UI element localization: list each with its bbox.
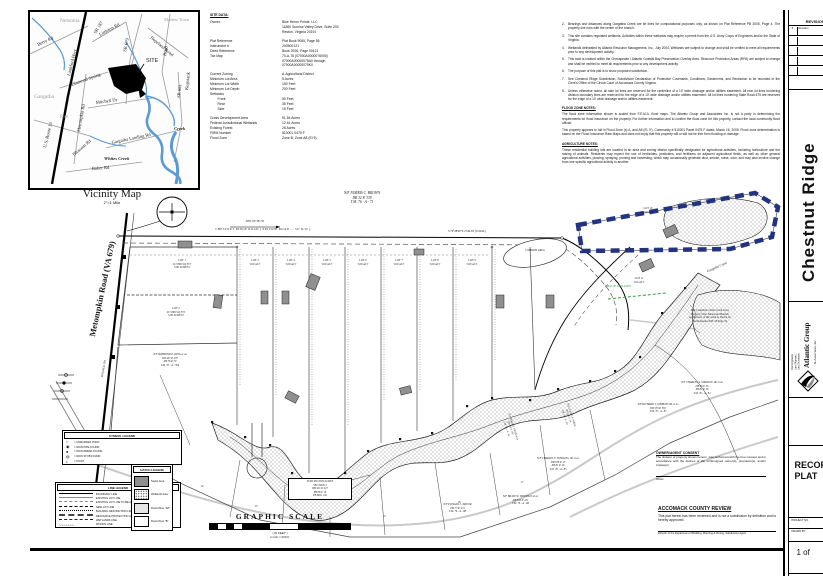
line-sample bbox=[59, 497, 93, 498]
graphic-scale-bar bbox=[209, 523, 351, 530]
site-data-value: 70-A-76 (07000A0000076000) 07000A0000007… bbox=[282, 54, 388, 69]
hatch-swatch bbox=[134, 489, 149, 500]
firm-logo-icon bbox=[797, 370, 819, 392]
plat-sheet: { "colors":{"navy_dash":"#23337f","septi… bbox=[0, 0, 823, 588]
lot2-label: LOT 2 217,800 SQ FT± 5.00 ACRES± bbox=[136, 307, 216, 318]
note-text: Bearings and distances along Gargatha Cr… bbox=[568, 22, 780, 30]
graphic-scale: GRAPHIC SCALE ( IN FEET ) 1 inch = 200 f… bbox=[205, 512, 355, 539]
note-item: 8. Unless otherwise noted, all side lot … bbox=[562, 89, 780, 101]
wetlands-edge-label: EDGE OF WETLANDS bbox=[578, 285, 658, 288]
revision-row bbox=[789, 66, 823, 76]
neighbor-wessells-label: N/F BILLIE W. WESSELLS et ux DB 553 P. 2… bbox=[473, 495, 568, 506]
seal-section bbox=[789, 398, 823, 446]
place-nelsonia: Nelsonia bbox=[60, 18, 80, 24]
vicinity-map-drawing: Nelsonia Modest Town Gargatha Rue Berry … bbox=[30, 12, 194, 184]
hatch-label: Flood Zone "A8" bbox=[151, 507, 170, 510]
hatch-swatch bbox=[134, 476, 149, 487]
agri-notes: These residential building lots are loca… bbox=[562, 148, 780, 165]
revisions-title: REVISIONS bbox=[789, 18, 823, 26]
hatch-swatch bbox=[134, 516, 149, 527]
note-item: 3. This site contains regulated wetlands… bbox=[562, 34, 780, 42]
field-project: PROJECT NO. bbox=[789, 518, 823, 529]
county-review-body: This plat herein has been reviewed and i… bbox=[658, 514, 776, 523]
place-modest-town: Modest Town bbox=[164, 17, 190, 22]
revision-row bbox=[789, 46, 823, 56]
rev-col-desc: Revision bbox=[799, 27, 809, 30]
note-text: See Chestnut Ridge Subdivision, Subdivis… bbox=[568, 77, 780, 85]
parcel17-label: 17 bbox=[516, 481, 528, 485]
sheet-number-section: 1 of bbox=[789, 542, 823, 574]
road-berry: Berry Rd bbox=[36, 35, 54, 47]
line-sample bbox=[59, 493, 93, 494]
common-area-pond bbox=[501, 234, 569, 273]
hatch-legend-row: Septic Area bbox=[134, 476, 170, 487]
firm-name: Atlantic Group bbox=[803, 308, 811, 368]
revisions-header-row: # Revision bbox=[789, 26, 823, 36]
site-data-value: Blue Heron Pointe, LLC 11860 Sunrise Val… bbox=[282, 20, 388, 35]
hatch-legend-items: Septic Area Wetlands Area Flood Zone "A8… bbox=[132, 476, 172, 528]
symbol-legend: SYMBOL LEGEND ○ = UNMARKED POINT ◉ = IRO… bbox=[62, 430, 182, 465]
lot4-label: LOT 4 5.00 AC± bbox=[274, 259, 308, 266]
line-label: WETLANDS LINE bbox=[96, 519, 117, 522]
symbol-label: = IRON REBAR FOUND bbox=[74, 450, 102, 453]
parcel12-label: 12 bbox=[196, 485, 208, 489]
sheet-type-label: RECORD PLAT bbox=[789, 446, 823, 483]
road-road: Road bbox=[162, 45, 169, 56]
line-label: WOODS LINE bbox=[96, 523, 113, 526]
hatch-label: Wetlands Area bbox=[151, 493, 168, 496]
flood-notes-heading: FLOOD ZONE NOTES: bbox=[562, 106, 780, 110]
sheet-number: 1 of bbox=[789, 542, 823, 557]
symbol-label: = IRON STOB FOUND bbox=[74, 455, 100, 458]
parcel15-label: 15 bbox=[378, 515, 390, 519]
neighbor-gibbons-label: N/F RICHARD T. GIBBONS JR. et ux DB 553 … bbox=[608, 403, 708, 414]
symbol-glyph-icon: • bbox=[66, 460, 74, 464]
lot10-label: LOT 10 4.50 AC± bbox=[616, 207, 680, 214]
owner-consent-block: OWNER/AGENT CONSENT The division of prop… bbox=[656, 451, 766, 481]
road-diamond-spring: Diamond Spring bbox=[71, 72, 102, 87]
note-item: 7. See Chestnut Ridge Subdivision, Subdi… bbox=[562, 77, 780, 85]
survey-symbols bbox=[52, 374, 74, 399]
field-drawn: DRAWN BY: bbox=[789, 529, 823, 540]
hatch-label: Flood Zone "B" bbox=[151, 520, 168, 523]
chestnut-ridge-road-label: CHESTNUT RIDGE ROAD ( PRIVATE ROAD — 50'… bbox=[148, 227, 378, 231]
parcel13-label: 13 bbox=[250, 505, 262, 509]
line-label: NEW LOT LINE bbox=[96, 506, 114, 509]
site-data-row: Side 15 Feet bbox=[210, 107, 388, 112]
lot6-label: LOT 6 5.00 AC± bbox=[346, 259, 380, 266]
hatch-legend-title: HATCH LEGEND bbox=[133, 466, 171, 473]
symbol-label: = POINT bbox=[74, 460, 84, 463]
project-title: Chestnut Ridge bbox=[799, 102, 819, 282]
project-title-section: Chestnut Ridge bbox=[789, 90, 823, 302]
flood-notes: The flood zone information shown is scal… bbox=[562, 112, 780, 136]
neighbor-strange-label: N/F CHARLES A. STRANGE JR. et ux DB 96 P… bbox=[652, 381, 752, 395]
note-item: 6. The purpose of this plat is to show p… bbox=[562, 69, 780, 73]
site-data-label: Tax Map bbox=[210, 54, 282, 69]
lot3-label: LOT 3 5.00 AC± bbox=[238, 259, 272, 266]
sheet-type-section: RECORD PLAT bbox=[789, 446, 823, 518]
water-creek: Creek bbox=[174, 126, 186, 131]
revision-row bbox=[789, 36, 823, 46]
site-data-value: 15 Feet bbox=[282, 107, 388, 112]
symbol-glyph-icon: ◍ bbox=[66, 455, 74, 459]
creek-note: The Centerline of the Creek is the Prope… bbox=[655, 309, 765, 324]
numbered-notes: 2. Bearings and distances along Gargatha… bbox=[562, 22, 780, 101]
graphic-scale-title: GRAPHIC SCALE bbox=[205, 512, 355, 521]
lot9-label: LOT 9 5.00 AC± bbox=[454, 259, 490, 266]
hatch-legend: HATCH LEGEND Septic Area Wetlands Area F… bbox=[131, 464, 173, 531]
note-item: 2. Bearings and distances along Gargatha… bbox=[562, 22, 780, 30]
firm-subname: & Associates, Inc. bbox=[813, 312, 817, 364]
agri-note-para: These residential building lots are loca… bbox=[562, 148, 780, 165]
flood-note-para: The flood zone information shown is scal… bbox=[562, 112, 780, 124]
fields-section: PROJECT NO. DRAWN BY: bbox=[789, 518, 823, 542]
note-text: The purpose of this plat is to show prop… bbox=[568, 69, 780, 73]
neighbor-brown-label: N/F NORRIS C. BROWN DB 32 P. 339 T.M. 76… bbox=[292, 191, 432, 205]
owner-signature-line: Owner bbox=[656, 476, 766, 481]
line-sample bbox=[59, 519, 93, 520]
green-wetland-mark bbox=[608, 293, 666, 299]
symbol-legend-items: ○ = UNMARKED POINT ◉ = IRON PIPE FOUND ●… bbox=[63, 440, 181, 464]
road-blossom: Blossom Rd bbox=[71, 138, 92, 157]
rev-col-no: # bbox=[789, 27, 798, 36]
site-data-heading: SITE DATA: bbox=[210, 13, 388, 18]
site-data-value: Zone B, Zone A8 (El 9) bbox=[282, 136, 388, 141]
hatch-label: Septic Area bbox=[151, 480, 164, 483]
line-label: BOUNDARY LINE bbox=[96, 493, 117, 496]
title-block-inner: REVISIONS # Revision Chestnut Ridge Atla… bbox=[788, 10, 823, 576]
sheet-bottom-border bbox=[30, 548, 785, 551]
site-data-row: Tax Map 70-A-76 (07000A0000076000) 07000… bbox=[210, 54, 388, 69]
line-label: EXISTING LOT LINE bbox=[96, 497, 120, 500]
note-text: Unless otherwise noted, all side lot lin… bbox=[568, 89, 780, 101]
place-gargatha: Gargatha bbox=[34, 94, 55, 100]
symbol-legend-title: SYMBOL LEGEND bbox=[64, 432, 180, 439]
firm-section: Atlantic Group & Associates, Inc. Civil … bbox=[789, 302, 823, 398]
lot5-label: LOT 5 5.00 AC± bbox=[310, 259, 344, 266]
site-data-block: SITE DATA: Owner: Blue Heron Pointe, LLC… bbox=[210, 13, 388, 141]
tie-distance-label: DIST OF 387.50' bbox=[222, 220, 288, 224]
road-sr681: SR 681 bbox=[176, 83, 182, 98]
note-item: 4. Wetlands delineated by Atlantic Resou… bbox=[562, 46, 780, 54]
lot8-label: LOT 8 5.00 AC± bbox=[418, 259, 452, 266]
neighbor-king-label: N/F RAYMOND E. KING et ux DB 467 P. 297 … bbox=[110, 353, 230, 367]
lot7-label: LOT 7 5.00 AC± bbox=[382, 259, 416, 266]
site-data-label: Owner: bbox=[210, 20, 282, 35]
vicinity-highway bbox=[52, 12, 86, 184]
hatch-swatch bbox=[134, 503, 149, 514]
line-label: BUILDING RESTRICTION LINE bbox=[96, 510, 133, 513]
common-area-label: COMMON AREA bbox=[504, 249, 566, 252]
agri-notes-heading: AGRICULTURE NOTES: bbox=[562, 142, 780, 146]
site-data-label: Flood Zone bbox=[210, 136, 282, 141]
hatch-legend-row: Flood Zone "A8" bbox=[134, 503, 170, 514]
firm-services: Civil Engineers Land Planners Land Surve… bbox=[791, 306, 801, 370]
line-sample bbox=[59, 506, 93, 507]
place-rue: Rue bbox=[60, 115, 69, 120]
symbol-label: = IRON PIPE FOUND bbox=[74, 446, 99, 449]
hatch-legend-row: Wetlands Area bbox=[134, 489, 170, 500]
title-block: REVISIONS # Revision Chestnut Ridge Atla… bbox=[783, 10, 823, 576]
road-sr679: SR 679 bbox=[122, 37, 130, 52]
revisions-section: REVISIONS # Revision bbox=[789, 18, 823, 90]
note-text: This tract is located within the Chesape… bbox=[568, 57, 780, 65]
line-sample bbox=[59, 501, 93, 502]
lot11-label: LOT 11 5.04 AC± bbox=[608, 277, 670, 284]
line-sample bbox=[59, 510, 93, 511]
site-data-label: Side bbox=[210, 107, 282, 112]
detail-circle bbox=[127, 197, 187, 231]
review-signature-line: Director of the Department of Building, … bbox=[658, 531, 776, 536]
road-us13: U.S. Route 13 bbox=[42, 121, 53, 148]
notes-block: 2. Bearings and distances along Gargatha… bbox=[562, 22, 780, 168]
flood-note-para: This property appears to fall in Flood Z… bbox=[562, 128, 780, 136]
note-item: 5. This tract is located within the Ches… bbox=[562, 57, 780, 65]
county-review-block: ACCOMACK COUNTY REVIEW This plat herein … bbox=[658, 506, 776, 536]
road-baker: Baker Rd bbox=[92, 165, 110, 171]
vicinity-roads bbox=[30, 14, 188, 172]
county-review-title: ACCOMACK COUNTY REVIEW bbox=[658, 506, 776, 513]
note-text: This site contains regulated wetlands. A… bbox=[568, 34, 780, 42]
owner-consent-body: The division of property shown hereon, w… bbox=[656, 456, 766, 468]
road-metompkin: Metompkin Rd bbox=[76, 103, 86, 132]
vicinity-map: Nelsonia Modest Town Gargatha Rue Berry … bbox=[28, 10, 200, 190]
site-label: SITE bbox=[146, 58, 159, 64]
symbol-label: = UNMARKED POINT bbox=[74, 441, 100, 444]
note-text: Wetlands delineated by Atlantic Resource… bbox=[568, 46, 780, 54]
lot1-label: LOT 1 217,800 SQ FT± 5.00 ACRES± bbox=[142, 259, 222, 270]
turlington-acres-box: TURLINGTON ACRES SECTION 2 DB 451 P. 227… bbox=[288, 478, 352, 500]
graphic-scale-caption: ( IN FEET ) 1 inch = 200 ft. bbox=[205, 531, 355, 539]
hatch-legend-row: Flood Zone "B" bbox=[134, 516, 170, 527]
water-whites-creek: Whites Creek bbox=[104, 156, 130, 161]
line-sample bbox=[59, 514, 93, 516]
site-data-row: Flood Zone Zone B, Zone A8 (El 9) bbox=[210, 136, 388, 141]
site-data-rows: Owner: Blue Heron Pointe, LLC 11860 Sunr… bbox=[210, 20, 388, 141]
road-bearing-label: S 79°28'00"E 2746.38' (TOTAL) bbox=[392, 230, 542, 234]
site-data-row: Owner: Blue Heron Pointe, LLC 11860 Sunr… bbox=[210, 20, 388, 35]
revision-row bbox=[789, 56, 823, 66]
road-kegotank: Kegotank bbox=[184, 71, 191, 90]
